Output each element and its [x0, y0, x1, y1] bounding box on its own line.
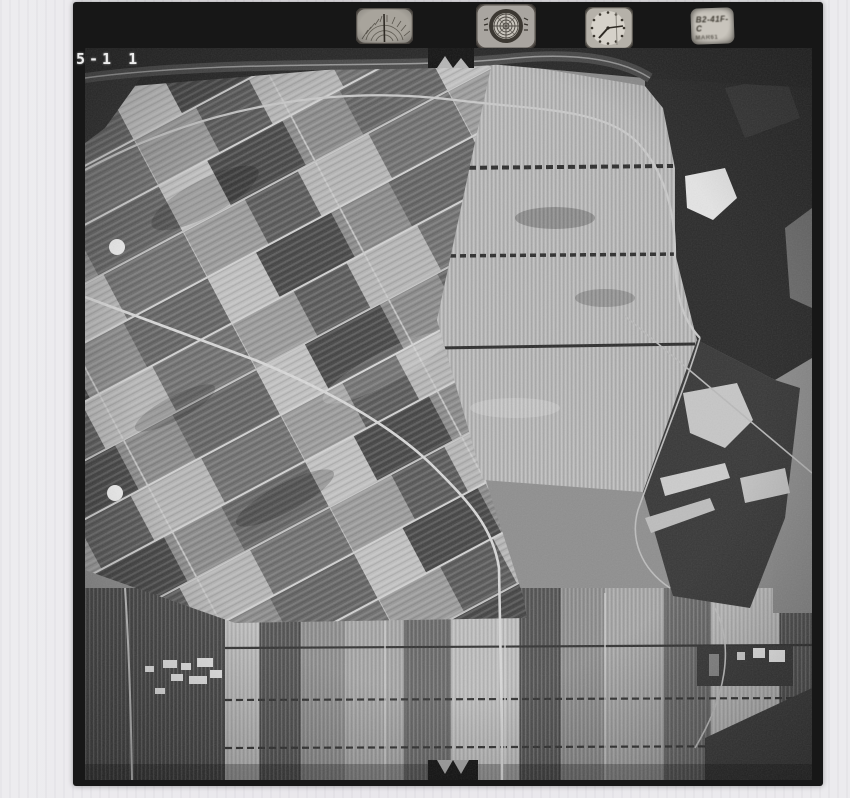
scanned-aerial-film-frame: B2-41F-C MAR61 5-1 1: [0, 0, 850, 798]
frame-number-stamp: 5-1 1: [76, 50, 141, 68]
aerial-photo: [85, 48, 812, 780]
altimeter-gauge-icon: [356, 8, 413, 44]
bullseye-level-icon: [476, 4, 536, 49]
frame-data-label-line1: B2-41F-C: [696, 14, 735, 33]
frame-data-label-line2: MAR61: [695, 34, 734, 41]
clock-icon: [585, 7, 633, 49]
frame-data-label: B2-41F-C MAR61: [690, 7, 734, 44]
